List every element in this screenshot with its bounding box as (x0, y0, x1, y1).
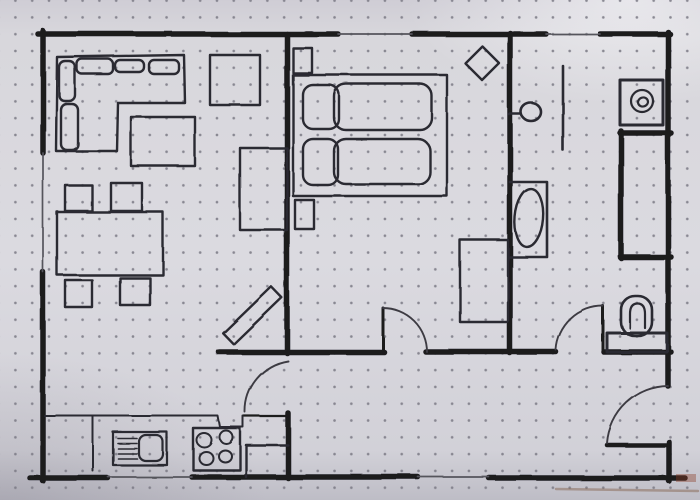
nightstand (295, 200, 314, 229)
dining-chair (120, 278, 150, 305)
floorplan-sketch (0, 0, 700, 500)
washing-machine (620, 80, 663, 125)
nightstand (293, 48, 312, 73)
ink-blot-corner (676, 474, 696, 482)
washing-machine-door (637, 96, 649, 107)
washbasin-bowl (513, 188, 546, 248)
walls-layer (30, 31, 685, 481)
side-table (210, 55, 260, 105)
door-entrance-arc (607, 386, 668, 443)
dining-chair (65, 185, 92, 211)
door-bedroom-arc (383, 308, 427, 352)
doors-layer (244, 306, 669, 445)
pillow (303, 139, 338, 185)
stove-burner (197, 433, 212, 447)
stove-burner (220, 431, 233, 444)
duvet (334, 84, 432, 130)
dining-chair (111, 183, 142, 211)
corner-cabinet (246, 445, 288, 477)
wardrobe (460, 240, 508, 322)
sofa-cushion (149, 60, 179, 74)
door-kitchen-arc (245, 361, 288, 412)
coffee-table (131, 117, 195, 166)
sink-basin (139, 435, 163, 461)
desk (240, 148, 287, 230)
stove-burner (199, 452, 213, 465)
sofa-cushion (61, 104, 78, 150)
dot-grid-paper (0, 0, 700, 500)
windows-layer (43, 34, 600, 477)
dining-chair (65, 280, 92, 307)
sofa-cushion (77, 59, 113, 74)
wall-hook-ring (521, 103, 541, 121)
stove-burner (219, 450, 232, 462)
sofa-cushion (115, 60, 144, 72)
washing-machine-drum (631, 90, 653, 112)
furniture-layer (45, 46, 667, 477)
door-bathroom-arc (556, 306, 603, 350)
plant-diamond (465, 46, 499, 80)
sofa-cushion (59, 61, 75, 101)
toilet-seat (630, 304, 645, 329)
counter-edge (45, 416, 243, 427)
sideboard-diagonal (223, 287, 282, 344)
ink-layer (30, 31, 685, 481)
dining-table (57, 212, 163, 275)
toilet-bowl (621, 296, 652, 336)
marker-smudge (556, 489, 698, 491)
double-bed-frame (293, 75, 447, 196)
duvet (334, 139, 430, 184)
